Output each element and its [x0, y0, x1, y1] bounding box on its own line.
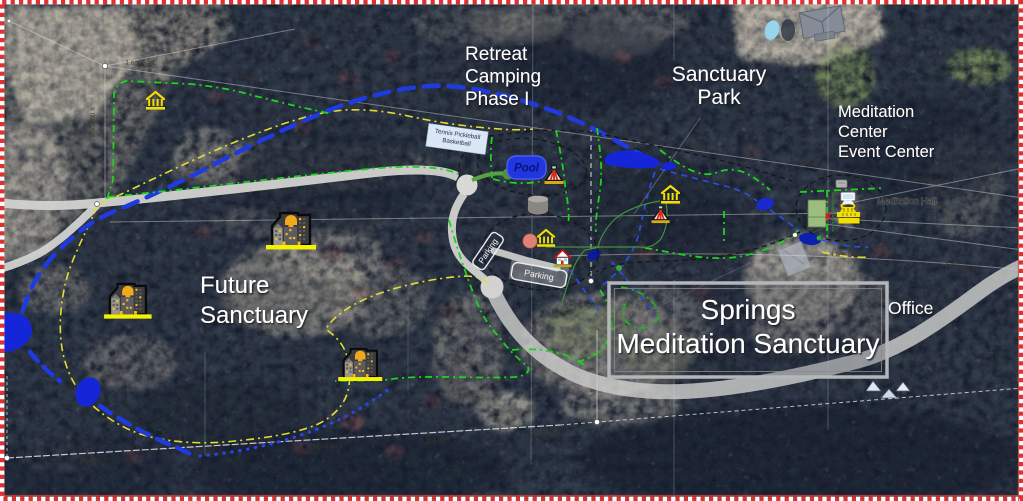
- svg-text:Future: Future: [200, 272, 269, 299]
- svg-text:Camping: Camping: [465, 67, 541, 88]
- svg-text:Event Center: Event Center: [838, 143, 935, 161]
- svg-text:Sanctuary: Sanctuary: [200, 302, 308, 329]
- svg-text:Meditation Sanctuary: Meditation Sanctuary: [616, 328, 879, 359]
- svg-text:Meditation Hall: Meditation Hall: [877, 196, 937, 206]
- svg-text:Office: Office: [888, 298, 933, 318]
- svg-text:Park: Park: [697, 86, 741, 109]
- svg-text:Springs: Springs: [701, 294, 796, 325]
- svg-text:Sanctuary: Sanctuary: [672, 63, 767, 86]
- svg-text:Center: Center: [838, 123, 888, 141]
- svg-text:Retreat: Retreat: [465, 44, 528, 65]
- svg-text:Pool: Pool: [514, 163, 540, 175]
- svg-text:Meditation: Meditation: [838, 103, 914, 121]
- svg-text:1,600.00 ft: 1,600.00 ft: [90, 107, 97, 138]
- svg-text:Phase I: Phase I: [465, 89, 529, 110]
